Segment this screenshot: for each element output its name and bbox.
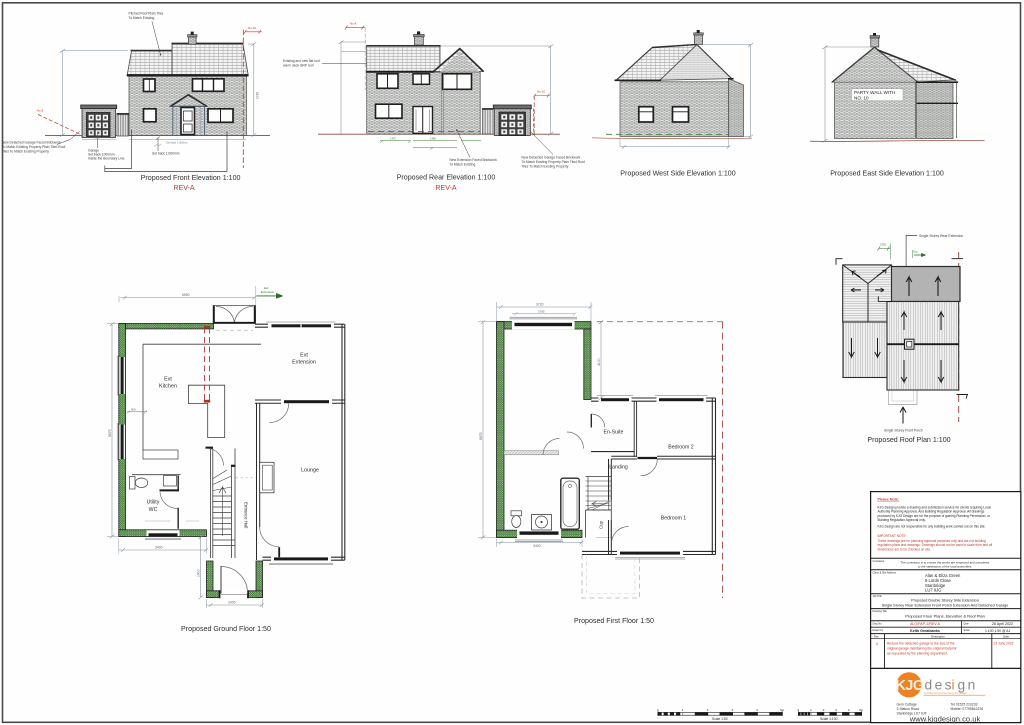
svg-text:8675: 8675 (479, 432, 483, 440)
svg-text:Extension: Extension (292, 360, 316, 366)
svg-text:Contractor: Contractor (873, 560, 885, 563)
svg-text:Pitched Roof Plain Tiles: Pitched Roof Plain Tiles (129, 12, 164, 16)
svg-text:dimensions are to be checked o: dimensions are to be checked on site. (878, 547, 932, 551)
svg-text:3720: 3720 (536, 302, 544, 306)
svg-text:Keith Greatbanks: Keith Greatbanks (910, 629, 940, 633)
svg-text:Set back 1:000mm: Set back 1:000mm (152, 152, 180, 156)
svg-text:Single Storey Rear Extension: Single Storey Rear Extension (919, 234, 963, 238)
svg-text:Please Note:: Please Note: (878, 498, 900, 502)
svg-text:Date: Date (1003, 634, 1009, 638)
svg-text:Proposed First Floor 1:50: Proposed First Floor 1:50 (574, 617, 654, 625)
svg-text:Dwg No: Dwg No (873, 623, 883, 626)
svg-text:Tiles To Match Existing Proper: Tiles To Match Existing Property (2, 150, 49, 154)
svg-text:as requested by the planning d: as requested by the planning department. (887, 652, 948, 656)
svg-text:Description: Description (931, 634, 945, 638)
svg-text:New Detached Garage Faced Bric: New Detached Garage Faced Brickwork (522, 156, 581, 160)
svg-text:PARTY WALL WITH: PARTY WALL WITH (854, 90, 895, 95)
svg-text:No:8: No:8 (37, 109, 44, 113)
svg-text:Drawn by: Drawn by (873, 629, 884, 632)
svg-text:Bedroom 1: Bedroom 1 (661, 516, 686, 522)
svg-text:Single Storey Rear Extension F: Single Storey Rear Extension Front Porch… (882, 603, 1009, 607)
svg-text:New Detached Garage Faced Bric: New Detached Garage Faced Brickwork (2, 141, 61, 145)
svg-text:Proposed Double Storey Side Ex: Proposed Double Storey Side Extension (911, 599, 979, 603)
svg-text:Scale: Scale (964, 629, 971, 632)
svg-text:Scale 1:100: Scale 1:100 (820, 717, 838, 721)
svg-text:REV-A: REV-A (173, 184, 195, 192)
svg-text:4100: 4100 (597, 358, 601, 366)
svg-text:Cup: Cup (599, 520, 604, 529)
svg-text:2785: 2785 (538, 310, 545, 314)
svg-text:WC: WC (149, 507, 158, 513)
svg-text:Rev: Rev (874, 634, 879, 638)
svg-text:Proposed Ground Floor 1:50: Proposed Ground Floor 1:50 (181, 625, 271, 633)
svg-text:No:8: No:8 (350, 22, 357, 26)
svg-text:To Match Existing: To Match Existing (129, 16, 155, 20)
svg-text:Tel 01525 210233: Tel 01525 210233 (951, 702, 978, 706)
svg-text:3400: 3400 (155, 545, 163, 549)
svg-text:1470: 1470 (390, 137, 396, 141)
svg-text:Proposed Rear Elevation 1:100: Proposed Rear Elevation 1:100 (397, 174, 496, 182)
svg-text:No:10: No:10 (248, 26, 256, 30)
svg-text:3 Station Road: 3 Station Road (897, 707, 920, 711)
svg-text:Date: Date (964, 623, 970, 626)
svg-text:LU7 9JG: LU7 9JG (925, 588, 942, 593)
svg-text:Entrance Hall: Entrance Hall (244, 502, 249, 528)
svg-text:REV-A: REV-A (435, 184, 457, 192)
svg-text:Gem Cottage: Gem Cottage (897, 702, 917, 706)
svg-text:5000: 5000 (94, 136, 100, 140)
svg-text:Single Storey Front Porch: Single Storey Front Porch (884, 429, 923, 433)
svg-text:To Match Existing Property Pla: To Match Existing Property Plain Tiled R… (522, 160, 585, 164)
svg-text:23 June 2022: 23 June 2022 (994, 642, 1014, 646)
svg-text:Reduce the detached garage to: Reduce the detached garage to the size o… (887, 642, 955, 646)
svg-text:original garage maintaining th: original garage maintaining the original… (887, 647, 957, 651)
svg-text:1488: 1488 (430, 137, 436, 141)
svg-text:Building Regulation Approval o: Building Regulation Approval only. (878, 518, 926, 522)
svg-text:Mobile: 07795642226: Mobile: 07795642226 (951, 707, 984, 711)
svg-text:3400: 3400 (533, 544, 541, 548)
svg-text:Proposed Front Elevation 1:100: Proposed Front Elevation 1:100 (141, 174, 241, 182)
svg-text:Tiles To Match Existing Proper: Tiles To Match Existing Property (522, 165, 569, 169)
svg-text:Job Title: Job Title (873, 595, 883, 598)
svg-text:To Match Existing Property Pla: To Match Existing Property Plain Tiled R… (2, 145, 65, 149)
svg-text:Scale 1:50: Scale 1:50 (712, 717, 728, 721)
svg-text:1:100 1:50 @ A1: 1:100 1:50 @ A1 (985, 629, 1010, 633)
svg-text:1400: 1400 (196, 569, 200, 577)
svg-text:ALG/PAP-1/REV-A: ALG/PAP-1/REV-A (910, 622, 941, 626)
svg-text:Lounge: Lounge (301, 468, 319, 474)
svg-text:Proposed East Side Elevation 1: Proposed East Side Elevation 1:100 (830, 170, 944, 178)
svg-text:No:10: No:10 (537, 90, 545, 94)
svg-text:KJG Design are not responsible: KJG Design are not responsible for any b… (878, 524, 986, 528)
svg-text:www.kjgdesign.co.uk: www.kjgdesign.co.uk (909, 714, 981, 723)
svg-text:6550: 6550 (182, 293, 190, 297)
svg-text:NO: 10: NO: 10 (854, 96, 869, 101)
svg-text:5m: 5m (780, 708, 785, 712)
svg-text:Proposed Floor Plans, Elevatio: Proposed Floor Plans, Elevation & Roof P… (905, 613, 985, 618)
svg-text:8675: 8675 (108, 429, 112, 437)
svg-text:Architectural Planning & Desig: Architectural Planning & Design (924, 691, 968, 695)
svg-text:Client & Site Address: Client & Site Address (873, 571, 897, 574)
svg-text:En-Suite: En-Suite (604, 430, 624, 436)
svg-text:Extension: Extension (261, 290, 275, 294)
svg-text:Bedroom 2: Bedroom 2 (668, 445, 693, 451)
svg-text:Set back 1:000mm: Set back 1:000mm (166, 140, 188, 144)
svg-text:Landing: Landing (609, 465, 628, 471)
svg-text:26 April 2022: 26 April 2022 (992, 622, 1013, 626)
svg-text:Kitchen: Kitchen (159, 384, 177, 390)
svg-text:3405: 3405 (228, 600, 236, 604)
svg-text:Ext: Ext (164, 377, 172, 383)
svg-text:Ext: Ext (914, 250, 918, 254)
svg-text:KJG: KJG (895, 678, 924, 694)
svg-text:8150: 8150 (255, 92, 259, 99)
svg-text:900: 900 (131, 408, 136, 412)
svg-text:warm deck GRP roof: warm deck GRP roof (283, 64, 314, 68)
svg-text:Proposed West Side Elevation 1: Proposed West Side Elevation 1:100 (620, 170, 735, 178)
svg-text:Proposed Roof Plan 1:100: Proposed Roof Plan 1:100 (867, 436, 950, 444)
svg-text:Ext: Ext (300, 353, 308, 359)
svg-text:Drawing Title: Drawing Title (873, 610, 888, 613)
svg-text:5m: 5m (859, 708, 864, 712)
svg-text:Utility: Utility (147, 500, 160, 506)
svg-text:Existing and new flat roof: Existing and new flat roof (283, 59, 320, 63)
svg-text:to the satisfaction of the loc: to the satisfaction of the local authori… (918, 564, 972, 568)
svg-text:Inside the Boundary Line: Inside the Boundary Line (88, 157, 125, 161)
svg-text:3720: 3720 (880, 243, 886, 247)
svg-text:To Match Existing: To Match Existing (450, 163, 476, 167)
svg-text:New Extension Faced Brickwork: New Extension Faced Brickwork (450, 158, 498, 162)
svg-text:IMPORTANT NOTE:: IMPORTANT NOTE: (878, 534, 907, 538)
